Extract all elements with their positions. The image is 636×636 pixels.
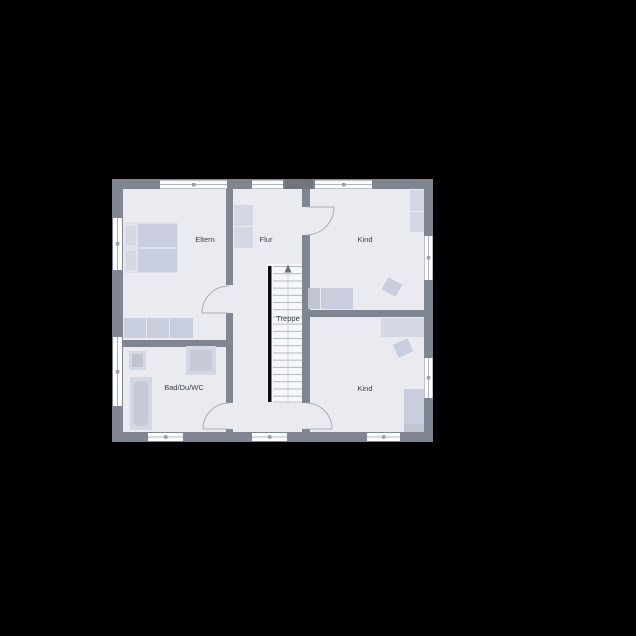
wall-flur-kind-stub <box>302 189 310 207</box>
wall-eltern-flur-lower <box>226 313 233 403</box>
wardrobe-cell <box>410 212 424 232</box>
window-marker <box>427 376 431 380</box>
bed-kind-top <box>308 288 353 309</box>
staircase <box>268 265 302 403</box>
wall-stair-east <box>302 235 310 403</box>
room-label-kind-top: Kind <box>357 235 372 244</box>
outer-wall-right <box>424 179 433 442</box>
window-marker <box>268 435 272 439</box>
wall-eltern-flur-upper <box>226 189 233 285</box>
bed-pillow <box>308 288 320 309</box>
wardrobe-cell <box>170 318 193 338</box>
room-label-bad: Bad/Du/WC <box>164 383 204 392</box>
room-label-treppe: Treppe <box>276 314 300 323</box>
closet-cell <box>234 227 253 248</box>
window-marker <box>342 183 346 187</box>
washbasin <box>129 351 146 370</box>
wall-kind-door-stub <box>302 429 310 433</box>
room-label-kind-bottom: Kind <box>357 384 372 393</box>
wardrobe-cell <box>147 318 169 338</box>
floor-plan-canvas: Eltern Flur Kind Treppe Bad/Du/WC Kind <box>0 0 636 636</box>
wall-pier-top <box>285 179 313 189</box>
bed-mattress <box>138 249 177 272</box>
bathtub-inner <box>134 381 149 426</box>
bed-kind-bottom <box>404 389 424 432</box>
window-marker <box>192 183 196 187</box>
bed-pillow <box>126 226 136 245</box>
bed-mattress <box>404 389 424 424</box>
window-marker <box>427 256 431 260</box>
wall-bad-door-stub <box>226 429 233 433</box>
room-label-flur: Flur <box>260 235 273 244</box>
wardrobe-cell <box>410 190 424 211</box>
window-marker <box>382 435 386 439</box>
window-marker <box>164 435 168 439</box>
wardrobe-eltern <box>124 318 193 338</box>
bed-mattress <box>321 288 353 309</box>
bed-footer <box>404 424 424 432</box>
window-marker <box>116 242 120 246</box>
desk-kind-bottom <box>381 318 424 337</box>
room-label-eltern: Eltern <box>195 235 215 244</box>
wardrobe-cell <box>124 318 146 338</box>
window-marker <box>116 370 120 374</box>
wall-eltern-bad <box>123 340 233 347</box>
shower <box>186 346 216 375</box>
closet-cell <box>234 205 253 226</box>
stair-stringer <box>268 266 272 402</box>
bed-pillow <box>126 251 136 270</box>
wardrobe-kind-top <box>410 190 424 232</box>
washbasin-inner <box>132 354 143 367</box>
shower-tray <box>190 350 212 371</box>
stair-treads <box>273 266 302 402</box>
bathtub <box>130 377 152 430</box>
wall-kind-kind <box>302 310 424 317</box>
bed-mattress <box>138 224 177 247</box>
bed-eltern <box>124 222 178 273</box>
